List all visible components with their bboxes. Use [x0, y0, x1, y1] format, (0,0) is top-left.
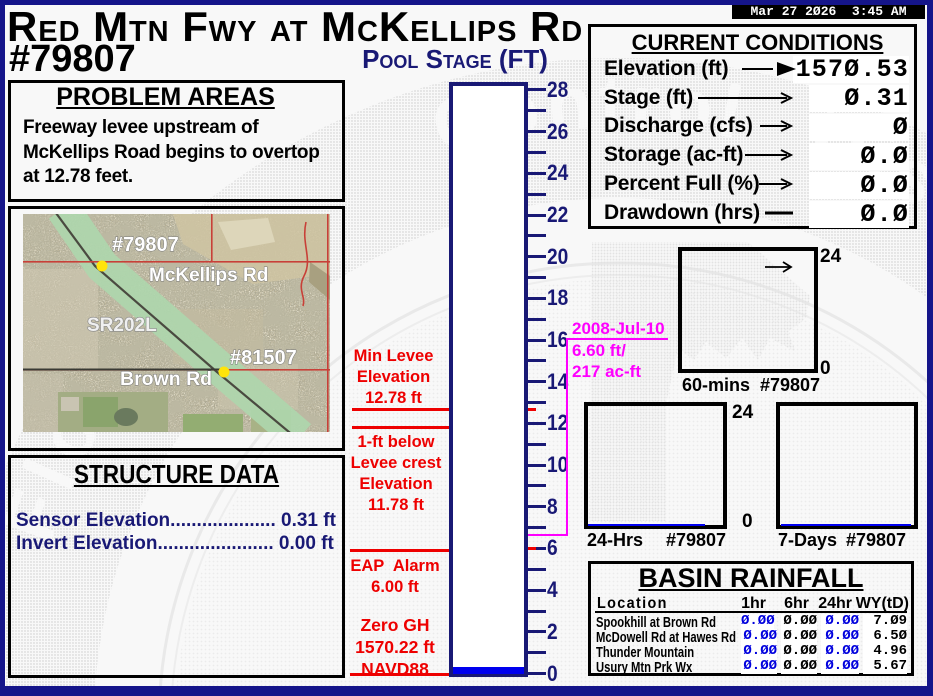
svg-text:#79807: #79807	[112, 234, 179, 256]
svg-text:Brown Rd: Brown Rd	[120, 368, 212, 390]
svg-text:#81507: #81507	[230, 347, 297, 369]
svg-text:SR202L: SR202L	[87, 315, 157, 336]
svg-text:McKellips Rd: McKellips Rd	[149, 265, 268, 286]
